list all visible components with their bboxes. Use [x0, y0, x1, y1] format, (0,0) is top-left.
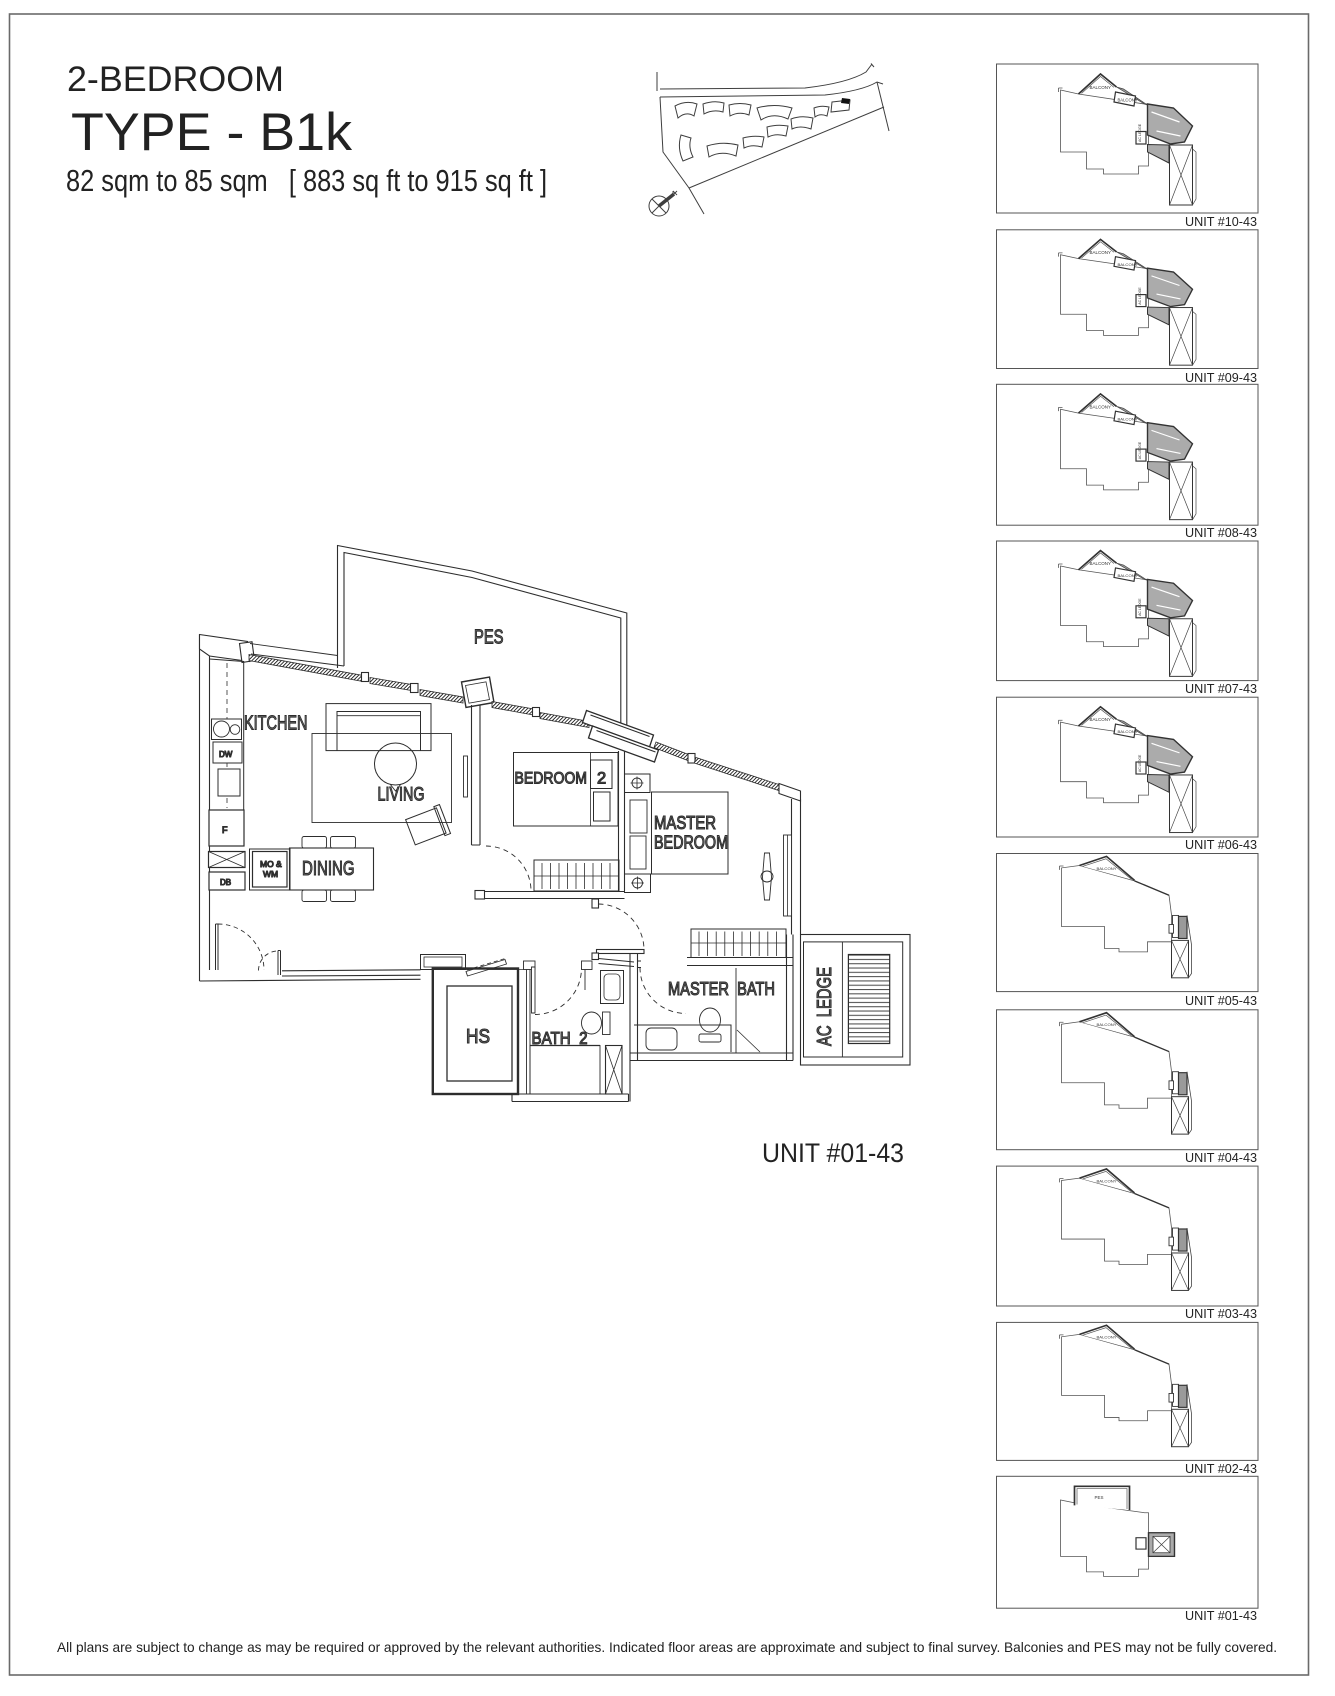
svg-text:BEDROOM: BEDROOM [654, 833, 728, 853]
svg-text:PES: PES [474, 627, 504, 649]
svg-text:MO &: MO & [260, 859, 282, 869]
svg-text:UNIT #09-43: UNIT #09-43 [1185, 371, 1257, 385]
svg-text:UNIT #06-43: UNIT #06-43 [1185, 838, 1257, 852]
svg-text:UNIT #01-43: UNIT #01-43 [1185, 1609, 1257, 1623]
svg-text:UNIT #08-43: UNIT #08-43 [1185, 526, 1257, 540]
svg-text:UNIT #04-43: UNIT #04-43 [1185, 1151, 1257, 1165]
svg-text:KITCHEN: KITCHEN [244, 712, 308, 735]
svg-text:UNIT #03-43: UNIT #03-43 [1185, 1307, 1257, 1321]
svg-text:2-BEDROOM: 2-BEDROOM [67, 60, 284, 99]
svg-text:UNIT #10-43: UNIT #10-43 [1185, 215, 1257, 229]
svg-text:WM: WM [263, 869, 278, 879]
svg-text:DW: DW [219, 750, 233, 759]
svg-text:All plans are subject to chang: All plans are subject to change as may b… [57, 1640, 1277, 1655]
svg-text:2: 2 [597, 770, 606, 788]
svg-text:DB: DB [220, 878, 231, 887]
svg-text:UNIT #01-43: UNIT #01-43 [762, 1138, 904, 1168]
svg-text:BEDROOM: BEDROOM [515, 770, 588, 788]
svg-text:UNIT #07-43: UNIT #07-43 [1185, 682, 1257, 696]
svg-text:HS: HS [466, 1025, 490, 1048]
svg-text:F: F [222, 825, 228, 835]
svg-text:MASTER BATH: MASTER BATH [668, 978, 775, 999]
svg-text:UNIT #02-43: UNIT #02-43 [1185, 1462, 1257, 1476]
svg-text:AC LEDGE: AC LEDGE [813, 967, 836, 1046]
svg-text:LIVING: LIVING [378, 784, 425, 806]
svg-text:TYPE - B1k: TYPE - B1k [71, 103, 353, 162]
svg-text:MASTER: MASTER [654, 813, 716, 833]
svg-text:82 sqm to 85 sqm [ 883 sq ft: 82 sqm to 85 sqm [ 883 sq ft to 915 sq f… [66, 163, 547, 198]
svg-text:DINING: DINING [302, 857, 355, 880]
svg-text:UNIT #05-43: UNIT #05-43 [1185, 994, 1257, 1008]
